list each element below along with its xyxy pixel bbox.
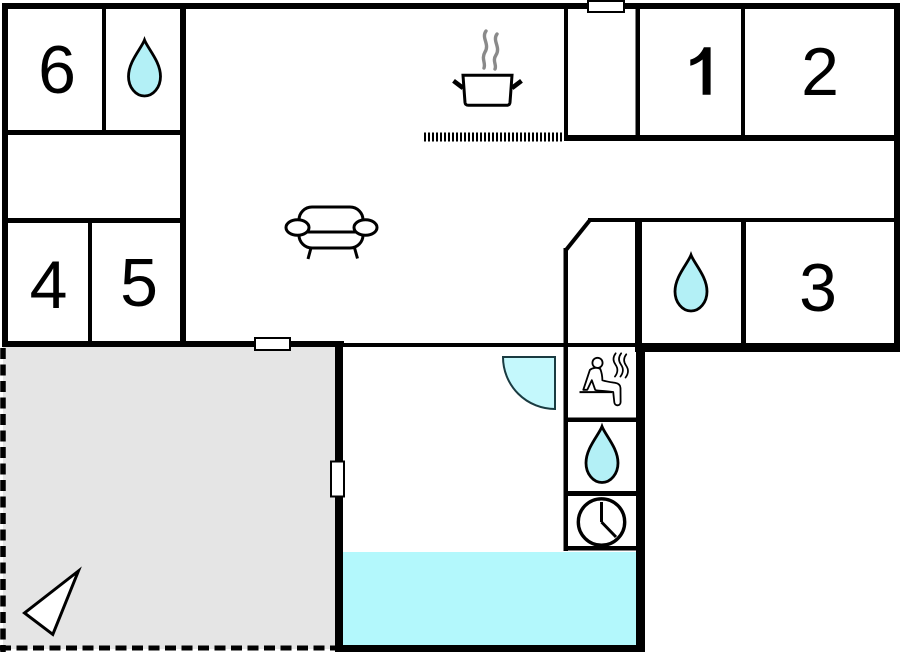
svg-text:6: 6 xyxy=(38,32,76,108)
svg-text:5: 5 xyxy=(120,245,158,321)
svg-text:4: 4 xyxy=(30,247,68,323)
svg-text:3: 3 xyxy=(799,250,837,326)
svg-text:2: 2 xyxy=(801,34,839,110)
